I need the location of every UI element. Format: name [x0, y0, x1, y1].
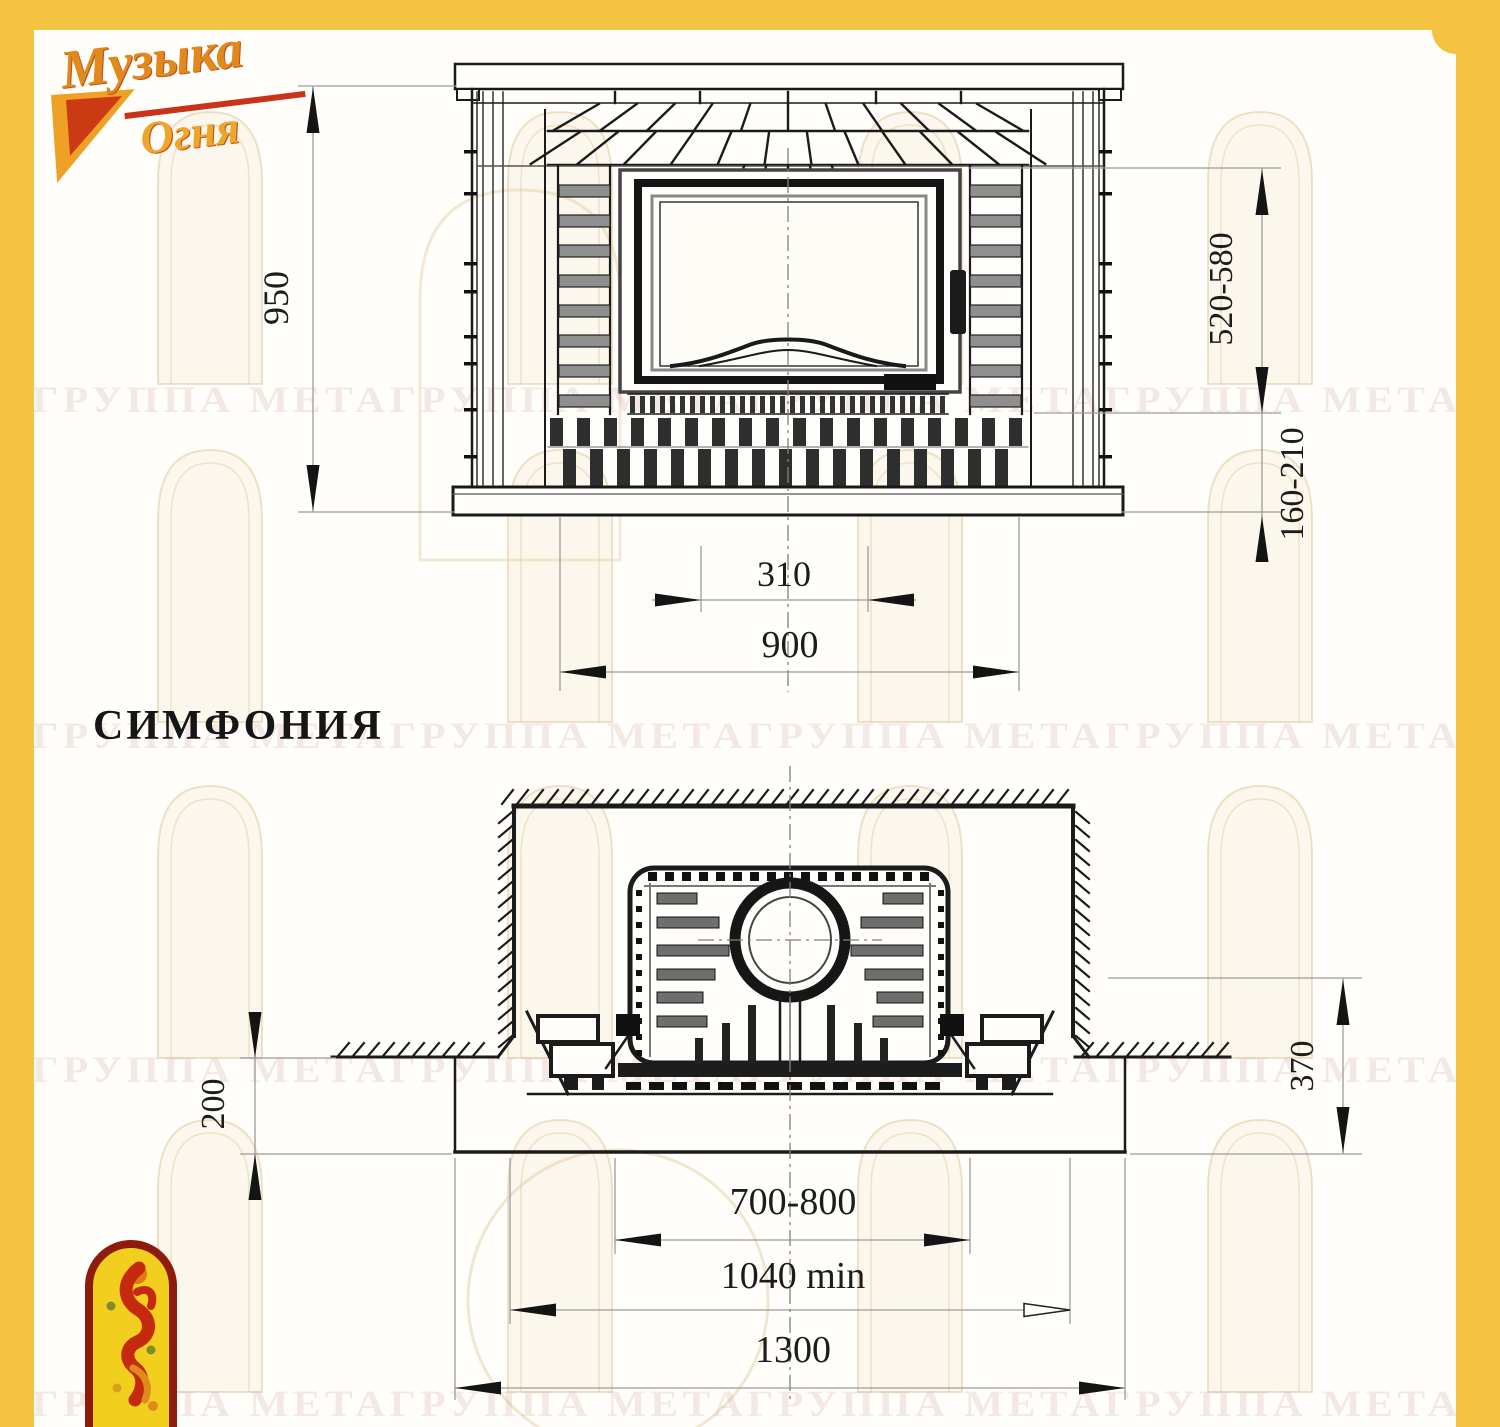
floor-hatching	[338, 1043, 484, 1056]
dim-side-depth-label: 370	[1284, 1041, 1321, 1092]
brand-logo: Музыка Огня	[28, 14, 308, 184]
dim-opening-bottom-label: 160-210	[1274, 427, 1311, 540]
dim-opening-top-label: 520-580	[1203, 232, 1240, 345]
model-title: СИМФОНИЯ	[93, 702, 384, 750]
floor-hatching	[1082, 1043, 1228, 1056]
dim-height-label: 950	[256, 271, 296, 325]
wall-hatching	[499, 812, 512, 1047]
page: ГРУППА МЕТАГРУППА МЕТАГРУППА МЕТАГРУППА …	[0, 0, 1500, 1427]
border-right	[1456, 0, 1500, 1427]
brand-line2: Огня	[137, 100, 242, 165]
wall-hatching	[502, 790, 1068, 804]
firebox-insert	[620, 170, 966, 392]
corner-emblem	[85, 1240, 177, 1427]
flame-pennant-inner-icon	[66, 96, 126, 156]
dim-base-width-label: 1300	[755, 1329, 831, 1371]
door-handle	[950, 270, 966, 334]
side-bench-left	[527, 1012, 628, 1094]
dim-front-depth-label: 200	[195, 1079, 232, 1130]
dim-inner-width-label: 310	[757, 554, 811, 594]
dim-insert-width-label: 700-800	[730, 1181, 857, 1223]
dim-niche-width-label: 1040 min	[721, 1255, 866, 1297]
border-left	[0, 0, 34, 1427]
wall-hatching	[1076, 812, 1089, 1047]
dim-body-width-label: 900	[762, 624, 819, 666]
brand-line1: Музыка	[57, 17, 246, 101]
side-bench-right	[952, 1012, 1053, 1094]
hollow-arrow	[1024, 1304, 1070, 1317]
front-rail-dashes	[626, 1082, 940, 1090]
flame-dancer-icon	[93, 1248, 169, 1427]
plan-view-drawing	[332, 790, 1230, 1152]
grate-row-low	[563, 449, 1008, 486]
mantel-shelf	[455, 64, 1123, 89]
grate-row-mid	[550, 418, 1022, 446]
